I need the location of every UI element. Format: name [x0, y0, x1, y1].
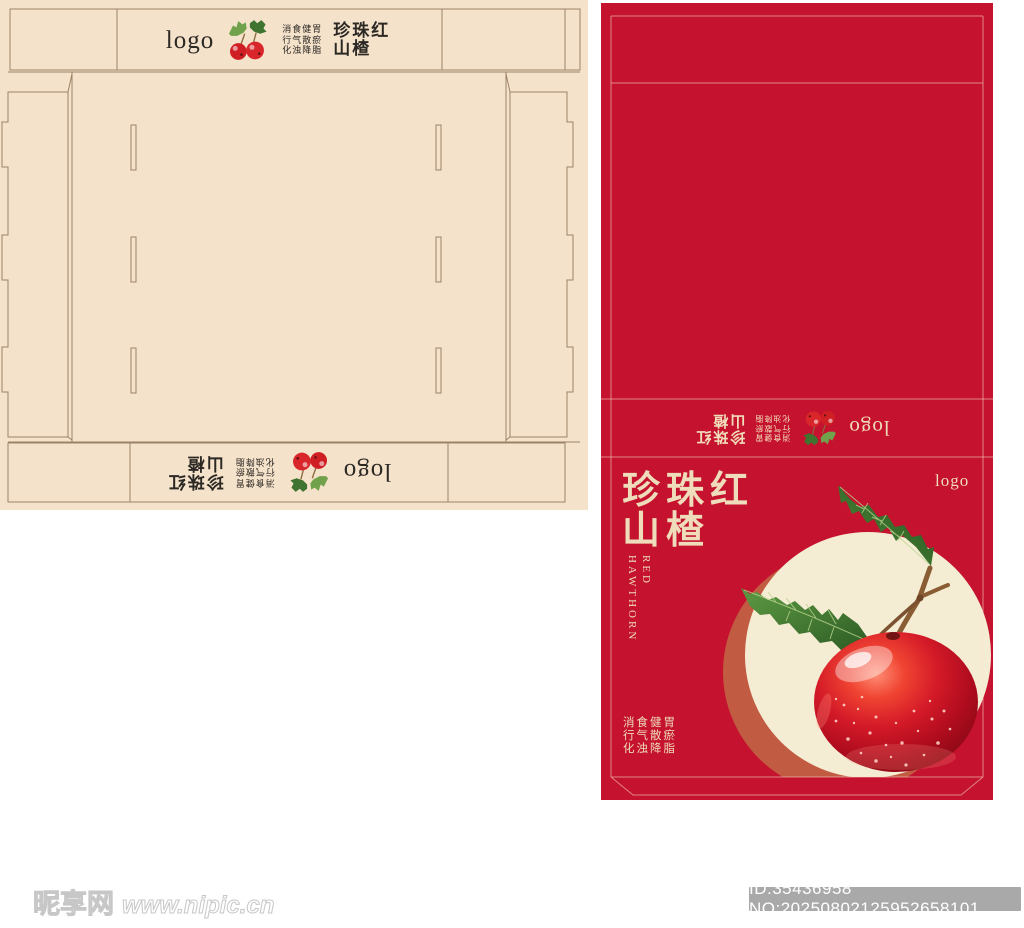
benefit-line: 行气散瘀 [754, 423, 790, 433]
package-top-flap-artwork: logo 消食健胃 行气散瘀 化浊降脂 珍珠红 山楂 [694, 410, 889, 446]
benefit-line: 行气散瘀 [623, 730, 677, 743]
benefits-text: 消食健胃 行气散瘀 化浊降脂 [282, 24, 322, 56]
hawthorn-berries-icon [225, 19, 271, 61]
benefit-line: 消食健胃 [754, 433, 790, 443]
benefit-line: 化浊降脂 [623, 743, 677, 756]
front-english-title: RED HAWTHORN [625, 555, 653, 670]
benefit-line: 消食健胃 [235, 477, 275, 488]
title-line: 山楂 [333, 40, 390, 58]
hawthorn-berries-icon [799, 410, 839, 446]
watermark: 昵享网www.nipic.cn [33, 882, 274, 921]
title-line: 山楂 [622, 511, 754, 551]
product-title-text: 珍珠红 山楂 [333, 22, 390, 58]
benefits-text: 消食健胃 行气散瘀 化浊降脂 [754, 414, 790, 443]
dieline-cut-lines [0, 0, 588, 510]
package-front-panel: logo 消食健胃 行气散瘀 化浊降脂 珍珠红 山楂 [601, 3, 993, 800]
benefit-line: 行气散瘀 [235, 467, 275, 478]
product-title-text: 珍珠红 山楂 [694, 412, 745, 444]
logo-text: logo [166, 28, 214, 53]
benefits-text: 消食健胃 行气散瘀 化浊降脂 [235, 456, 275, 488]
front-benefits-text: 消食健胃 行气散瘀 化浊降脂 [623, 717, 677, 756]
logo-text: logo [848, 418, 889, 439]
box-dieline-sheet: logo 消食健胃 行气散瘀 化浊降脂 珍珠红 山楂 [0, 0, 588, 510]
title-en-line: RED [639, 555, 653, 670]
design-canvas: logo 消食健胃 行气散瘀 化浊降脂 珍珠红 山楂 [0, 0, 1024, 928]
front-product-title: 珍珠红 山楂 [622, 471, 754, 551]
benefit-line: 消食健胃 [282, 24, 322, 35]
benefit-line: 消食健胃 [623, 717, 677, 730]
watermark-site-name: 昵享网 [33, 889, 114, 919]
title-line: 珍珠红 [167, 472, 224, 490]
title-en-line: HAWTHORN [625, 555, 639, 670]
benefit-line: 行气散瘀 [282, 35, 322, 46]
hawthorn-berries-icon [286, 451, 332, 493]
package-fold-lines [601, 3, 993, 800]
watermark-site-url: www.nipic.cn [122, 892, 274, 919]
title-line: 珍珠红 [622, 471, 754, 511]
logo-text: logo [935, 471, 969, 491]
image-id-badge: ID:35436958 NO:20250802125952658101 [749, 887, 1021, 911]
dieline-bottom-flap-artwork: logo 消食健胃 行气散瘀 化浊降脂 珍珠红 山楂 [167, 451, 391, 493]
title-line: 山楂 [167, 454, 224, 472]
benefit-line: 化浊降脂 [282, 45, 322, 56]
logo-text: logo [343, 460, 391, 485]
dieline-top-flap-artwork: logo 消食健胃 行气散瘀 化浊降脂 珍珠红 山楂 [166, 19, 390, 61]
title-line: 珍珠红 [333, 22, 390, 40]
title-line: 珍珠红 [694, 428, 745, 444]
title-line: 山楂 [694, 412, 745, 428]
benefit-line: 化浊降脂 [754, 414, 790, 424]
product-title-text: 珍珠红 山楂 [167, 454, 224, 490]
benefit-line: 化浊降脂 [235, 456, 275, 467]
